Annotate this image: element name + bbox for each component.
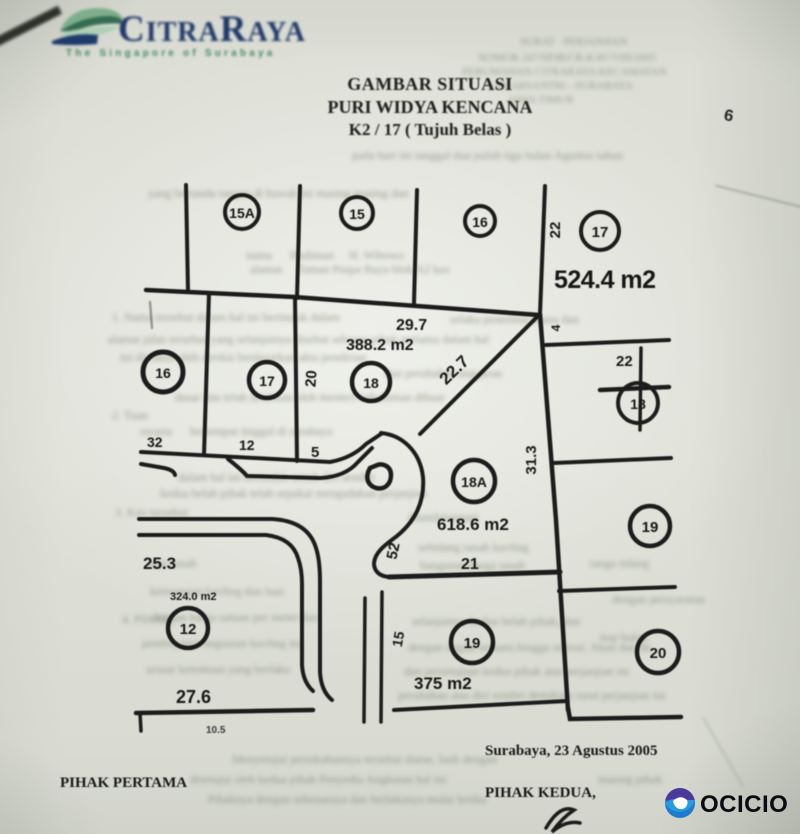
svg-text:16: 16 [472, 214, 488, 230]
svg-text:524.4 m2: 524.4 m2 [554, 266, 656, 294]
svg-text:29.7: 29.7 [396, 317, 427, 334]
svg-text:16: 16 [155, 365, 171, 381]
svg-text:19: 19 [464, 635, 481, 652]
svg-text:5: 5 [311, 444, 319, 461]
svg-text:18A: 18A [461, 474, 487, 490]
svg-text:15: 15 [389, 630, 407, 648]
svg-text:10.5: 10.5 [206, 725, 226, 736]
svg-text:12: 12 [180, 621, 197, 638]
svg-text:618.6 m2: 618.6 m2 [437, 515, 509, 534]
svg-text:52: 52 [384, 541, 404, 561]
svg-text:375 m2: 375 m2 [414, 674, 472, 693]
svg-text:22: 22 [547, 222, 564, 239]
svg-text:15A: 15A [229, 205, 255, 221]
svg-text:324.0 m2: 324.0 m2 [170, 591, 216, 603]
svg-text:32: 32 [147, 434, 163, 450]
svg-text:21: 21 [461, 556, 479, 573]
svg-text:17: 17 [259, 373, 275, 389]
svg-text:19: 19 [642, 519, 659, 536]
svg-text:4: 4 [549, 324, 563, 331]
svg-text:17: 17 [592, 224, 609, 241]
svg-text:388.2 m2: 388.2 m2 [346, 337, 414, 354]
svg-text:20: 20 [302, 370, 320, 388]
svg-text:27.6: 27.6 [176, 687, 211, 707]
svg-text:25.3: 25.3 [143, 554, 176, 573]
svg-text:20: 20 [650, 645, 667, 662]
svg-text:22: 22 [616, 353, 633, 370]
svg-text:18: 18 [363, 375, 379, 391]
svg-text:31.3: 31.3 [523, 445, 540, 474]
svg-text:22.7: 22.7 [436, 352, 473, 389]
svg-text:12: 12 [239, 437, 255, 453]
svg-text:15: 15 [349, 206, 365, 222]
svg-text:18: 18 [630, 396, 646, 412]
